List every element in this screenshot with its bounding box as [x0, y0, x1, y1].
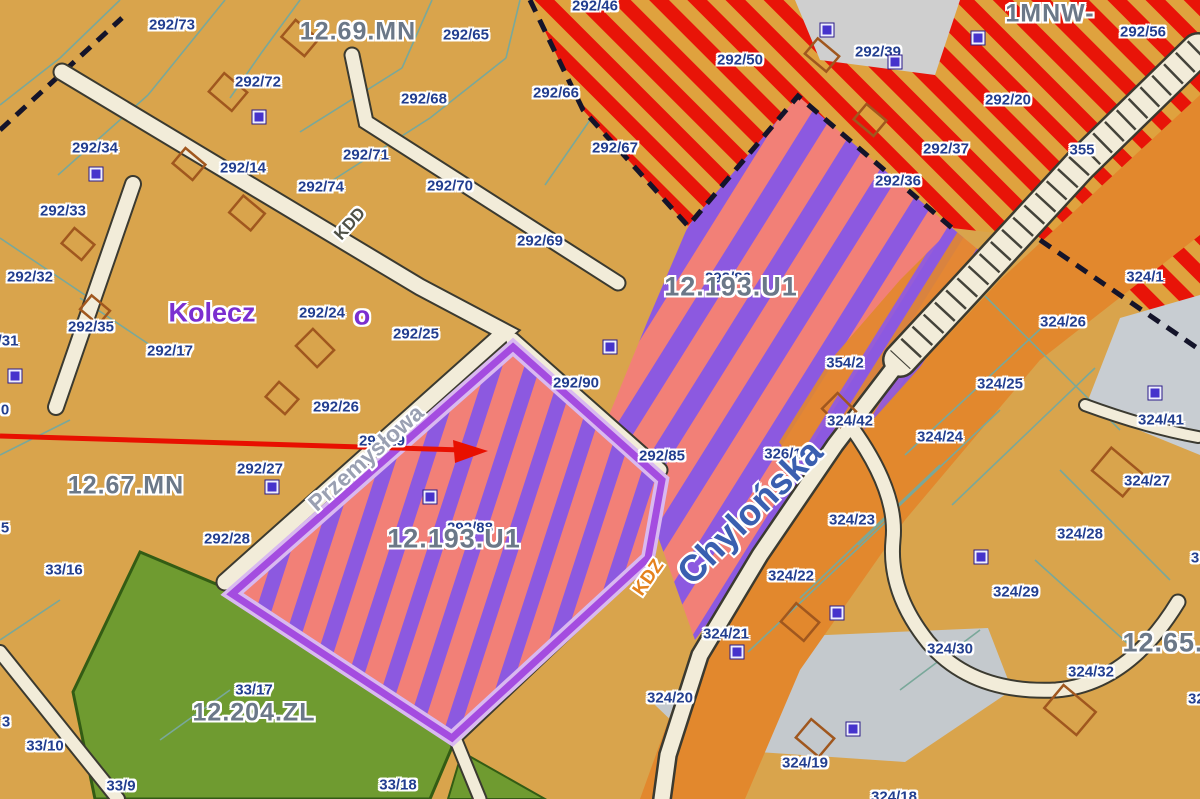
- map-canvas[interactable]: 292/73292/65292/72292/68292/66292/46292/…: [0, 0, 1200, 799]
- map-vector-layer: [0, 0, 1200, 799]
